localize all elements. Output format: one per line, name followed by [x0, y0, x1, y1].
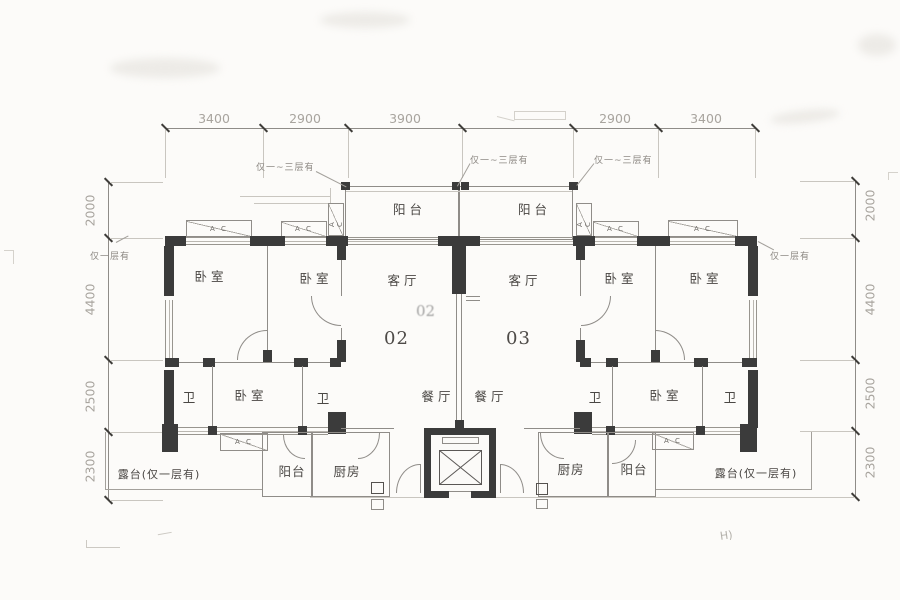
room-label-bathroom: 卫 — [722, 387, 738, 406]
wall-exterior-left — [164, 370, 174, 428]
faded-annotation-box — [514, 111, 566, 120]
wall-pier — [337, 246, 346, 260]
dim-label-top-5: 3400 — [676, 111, 736, 126]
ac-unit-box: A C — [281, 221, 327, 237]
dim-line-top — [165, 128, 755, 129]
door-arc — [655, 330, 685, 360]
service-shaft — [371, 499, 384, 510]
wall-pier — [742, 358, 757, 367]
window — [165, 300, 173, 366]
door-arc — [311, 296, 341, 326]
wall-break-mark — [466, 300, 480, 301]
floor-plan-canvas: 3400 2900 3900 2900 3400 2000 4400 2500 … — [0, 0, 900, 600]
room-label-kitchen: 厨房 — [328, 461, 366, 480]
wall-interior — [612, 366, 613, 428]
wall-pier — [294, 358, 308, 367]
dim-line-right — [855, 181, 856, 497]
wall-exterior-right — [748, 370, 758, 428]
dim-extension-line — [110, 500, 163, 501]
wall-interior — [702, 366, 703, 428]
room-label-bedroom: 卧室 — [297, 268, 335, 287]
room-label-living-room: 客厅 — [385, 270, 423, 289]
wall-party-line — [461, 294, 462, 428]
service-shaft — [536, 483, 548, 495]
dim-extension-line — [110, 238, 163, 239]
door-arc — [237, 330, 267, 360]
wall-pier — [735, 236, 757, 246]
dim-extension-line — [348, 130, 349, 178]
dim-extension-line — [110, 182, 163, 183]
ac-unit-label: A C — [576, 213, 592, 227]
window — [285, 237, 326, 245]
wall-interior — [341, 428, 394, 429]
wall-party-line — [456, 294, 457, 428]
wall-pier — [203, 358, 215, 367]
dim-extension-line — [110, 360, 163, 361]
window — [749, 300, 757, 366]
entrance-door-arc-unit-02 — [396, 464, 420, 493]
ac-unit-box: A C — [186, 220, 252, 237]
room-label-bedroom: 卧室 — [192, 266, 230, 285]
dim-label-top-2: 2900 — [275, 111, 335, 126]
service-shaft — [371, 482, 384, 494]
ac-unit-box: A C — [668, 220, 738, 237]
wall-pier — [694, 358, 708, 367]
entrance-door-arc-unit-03 — [500, 464, 524, 493]
annotation-leader — [758, 241, 774, 250]
service-shaft — [536, 499, 548, 509]
room-label-balcony: 阳台 — [618, 459, 650, 478]
room-label-bathroom: 卫 — [315, 388, 331, 407]
scan-smudge — [320, 12, 410, 28]
annotation-floor-1-left: 仅一层有 — [90, 249, 130, 262]
dim-label-top-4: 2900 — [585, 111, 645, 126]
wall-pier — [580, 358, 591, 367]
window — [595, 237, 637, 245]
wall-pier — [574, 412, 592, 434]
room-label-bedroom: 卧室 — [687, 268, 725, 287]
room-label-dining-room: 餐厅 — [419, 386, 457, 405]
margin-artifact — [888, 172, 898, 180]
room-label-balcony: 阳台 — [276, 461, 308, 480]
dim-extension-line — [800, 238, 855, 239]
room-label-bedroom: 卧室 — [602, 268, 640, 287]
wall-pier — [330, 358, 341, 367]
wall-interior — [524, 428, 580, 429]
room-label-living-room: 客厅 — [506, 270, 544, 289]
step-outline — [240, 196, 330, 197]
ac-unit-label: A C — [607, 225, 625, 233]
ac-unit-label: A C — [295, 225, 313, 233]
wall-interior — [165, 362, 341, 363]
annotation-floors-1-3-center: 仅一~三层有 — [470, 153, 529, 166]
wall-interior — [267, 246, 268, 362]
ac-unit-label: A C — [664, 437, 682, 445]
dim-extension-line — [658, 130, 659, 178]
dim-extension-line — [165, 130, 166, 178]
wall-pier — [573, 236, 595, 246]
balcony-rail-line — [346, 191, 572, 192]
dim-label-right-4: 2300 — [863, 433, 878, 493]
dim-label-left-1: 2000 — [83, 181, 98, 241]
balcony-right-outline — [459, 186, 573, 240]
elevator-counterweight — [442, 437, 479, 444]
wall-break-mark — [466, 296, 480, 297]
scan-smudge — [770, 106, 841, 126]
wall-exterior-right — [748, 246, 758, 296]
wall-pier — [250, 236, 285, 246]
window — [186, 237, 250, 245]
unit-number-03: 03 — [506, 328, 531, 349]
scan-smudge — [858, 34, 896, 56]
ac-unit-label: A C — [694, 225, 712, 233]
annotation-floors-1-3-right: 仅一~三层有 — [594, 153, 653, 166]
faded-annotation-leader — [497, 116, 515, 121]
dim-extension-line — [800, 360, 855, 361]
room-label-kitchen: 厨房 — [552, 459, 590, 478]
ground-line — [310, 497, 815, 498]
ac-unit-label: A C — [210, 225, 228, 233]
wall-interior — [212, 366, 213, 428]
wall-pier — [576, 246, 585, 260]
annotation-leader — [116, 235, 129, 242]
wall-exterior-left — [164, 246, 174, 296]
room-label-bedroom: 卧室 — [232, 385, 270, 404]
room-label-dining-room: 餐厅 — [472, 386, 510, 405]
wall-pier — [165, 236, 186, 246]
wall-party-center — [452, 246, 466, 294]
margin-artifact — [158, 532, 172, 538]
dim-label-top-3: 3900 — [375, 111, 435, 126]
annotation-floor-1-right: 仅一层有 — [770, 249, 810, 262]
window — [480, 237, 573, 245]
step-outline — [254, 203, 330, 204]
wall-pier — [165, 358, 179, 367]
step-outline — [330, 188, 331, 204]
door-leaf — [500, 464, 501, 493]
room-label-balcony-top-left: 阳台 — [393, 199, 423, 218]
wall-pier — [326, 236, 348, 246]
dim-extension-line — [573, 130, 574, 178]
wall-pier — [328, 412, 346, 434]
elevator-door-gap — [449, 491, 471, 499]
dim-extension-line — [755, 130, 756, 178]
dim-label-right-3: 2500 — [863, 364, 878, 424]
door-leaf — [420, 464, 421, 493]
door-arc — [581, 296, 611, 326]
margin-artifact — [4, 250, 14, 264]
dim-label-right-1: 2000 — [863, 176, 878, 236]
room-label-bathroom: 卫 — [587, 387, 603, 406]
wall-pier — [461, 182, 469, 190]
window — [348, 237, 440, 245]
room-label-terrace-right: 露台(仅一层有) — [710, 465, 802, 481]
handwritten-artifact: H) — [719, 528, 733, 543]
ac-unit-label: A C — [235, 438, 253, 446]
margin-artifact — [86, 540, 120, 548]
ac-unit-box: A C — [576, 203, 592, 236]
wall-pier — [438, 236, 480, 246]
ac-unit-box: A C — [220, 433, 268, 451]
room-label-terrace-left: 露台(仅一层有) — [113, 466, 205, 482]
annotation-leader — [316, 171, 347, 187]
room-label-bathroom: 卫 — [181, 387, 197, 406]
ac-unit-box: A C — [328, 203, 344, 236]
annotation-floors-1-3-left: 仅一~三层有 — [256, 160, 315, 173]
window — [670, 237, 735, 245]
unit-number-02: 02 — [384, 328, 409, 349]
annotation-leader — [576, 163, 594, 186]
dim-label-right-2: 4400 — [863, 270, 878, 330]
dim-label-left-3: 2500 — [83, 367, 98, 427]
dim-extension-line — [800, 181, 855, 182]
wall-pier — [455, 420, 464, 429]
elevator-shaft-x-icon — [439, 450, 482, 485]
ac-unit-label: A C — [328, 213, 344, 227]
room-label-balcony-top-right: 阳台 — [518, 199, 548, 218]
ac-unit-box: A C — [593, 221, 639, 237]
ghost-unit-number: 02 — [416, 302, 435, 320]
dim-label-left-4: 2300 — [83, 437, 98, 497]
dim-label-left-2: 4400 — [83, 270, 98, 330]
scan-smudge — [110, 58, 220, 78]
ac-unit-box: A C — [652, 432, 694, 450]
wall-interior — [302, 366, 303, 428]
room-label-bedroom: 卧室 — [647, 385, 685, 404]
dim-extension-line — [462, 130, 463, 178]
wall-pier — [637, 236, 670, 246]
dim-label-top-1: 3400 — [184, 111, 244, 126]
